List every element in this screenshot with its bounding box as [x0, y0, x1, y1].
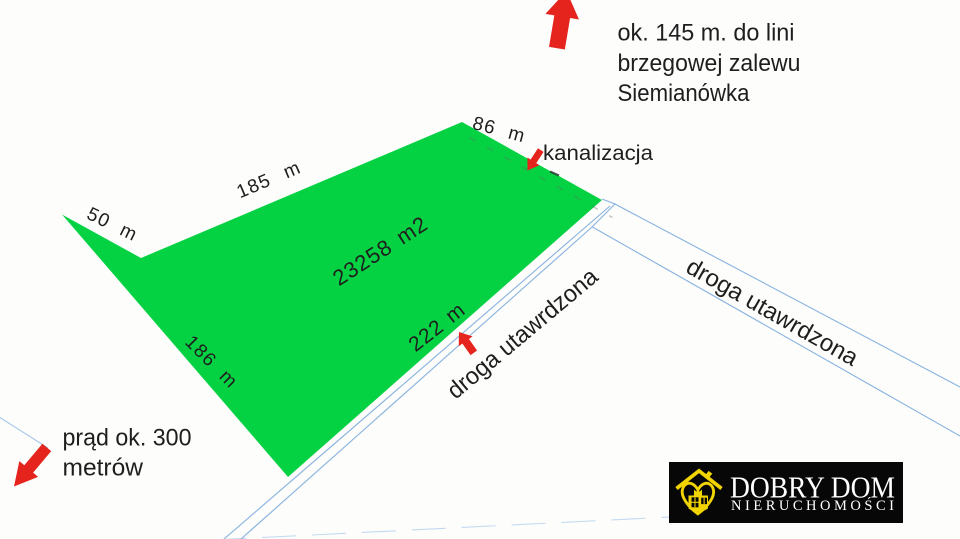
svg-text:NIERUCHOMOŚCI: NIERUCHOMOŚCI — [731, 497, 894, 514]
svg-text:kanalizacja: kanalizacja — [543, 141, 653, 165]
svg-text:brzegowej zalewu: brzegowej zalewu — [618, 50, 801, 77]
svg-text:Siemianówka: Siemianówka — [618, 80, 751, 107]
svg-text:ok. 145 m. do lini: ok. 145 m. do lini — [618, 20, 795, 47]
svg-text:prąd ok. 300: prąd ok. 300 — [63, 425, 192, 452]
svg-text:metrów: metrów — [63, 455, 144, 482]
